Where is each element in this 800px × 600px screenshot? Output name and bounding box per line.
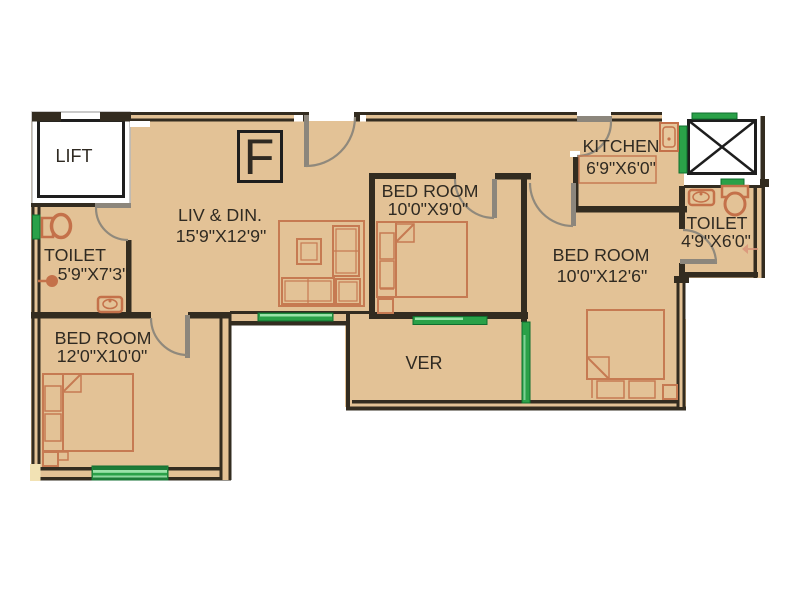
svg-text:KITCHEN: KITCHEN — [583, 136, 660, 156]
svg-text:10'0"X12'6": 10'0"X12'6" — [557, 266, 648, 286]
svg-text:VER: VER — [405, 353, 442, 373]
svg-text:BED ROOM: BED ROOM — [382, 181, 479, 201]
svg-text:6'9"X6'0": 6'9"X6'0" — [586, 158, 656, 178]
svg-text:12'0"X10'0": 12'0"X10'0" — [57, 346, 148, 366]
svg-text:5'9"X7'3": 5'9"X7'3" — [58, 264, 129, 284]
svg-text:TOILET: TOILET — [44, 245, 106, 265]
svg-text:LIFT: LIFT — [55, 146, 92, 166]
svg-text:LIV & DIN.: LIV & DIN. — [178, 205, 262, 225]
svg-text:15'9"X12'9": 15'9"X12'9" — [176, 226, 267, 246]
svg-text:10'0"X9'0": 10'0"X9'0" — [388, 199, 469, 219]
svg-text:F: F — [244, 129, 275, 185]
svg-text:BED ROOM: BED ROOM — [553, 245, 650, 265]
svg-text:BED ROOM: BED ROOM — [55, 328, 152, 348]
svg-text:TOILET: TOILET — [687, 213, 748, 233]
svg-text:4'9"X6'0": 4'9"X6'0" — [681, 231, 751, 251]
